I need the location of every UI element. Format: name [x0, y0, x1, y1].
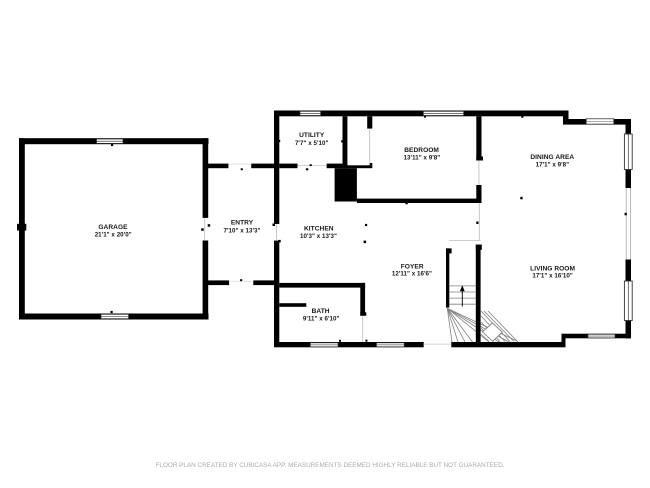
svg-text:17'1" x 16'10": 17'1" x 16'10": [532, 273, 572, 280]
svg-text:9'11" x 6'10": 9'11" x 6'10": [303, 316, 340, 323]
svg-text:21'1" x 20'0": 21'1" x 20'0": [95, 231, 132, 238]
svg-text:13'11" x 9'8": 13'11" x 9'8": [404, 155, 441, 162]
svg-text:GARAGE: GARAGE: [98, 224, 128, 231]
svg-text:17'1" x 9'8": 17'1" x 9'8": [536, 162, 570, 169]
svg-text:BATH: BATH: [312, 308, 330, 315]
svg-text:KITCHEN: KITCHEN: [304, 225, 334, 232]
svg-text:7'10" x 13'3": 7'10" x 13'3": [224, 227, 261, 234]
svg-text:DINING AREA: DINING AREA: [530, 154, 574, 161]
svg-text:7'7" x 5'10": 7'7" x 5'10": [295, 140, 329, 147]
svg-text:UTILITY: UTILITY: [299, 132, 325, 139]
svg-text:BEDROOM: BEDROOM: [404, 147, 439, 154]
svg-text:FLOOR PLAN CREATED BY CUBICASA: FLOOR PLAN CREATED BY CUBICASA APP. MEAS…: [156, 462, 505, 469]
svg-text:10'3" x 13'3": 10'3" x 13'3": [300, 233, 337, 240]
svg-text:12'11" x 16'6": 12'11" x 16'6": [392, 271, 432, 278]
svg-text:FOYER: FOYER: [401, 263, 424, 270]
svg-text:ENTRY: ENTRY: [231, 220, 254, 227]
